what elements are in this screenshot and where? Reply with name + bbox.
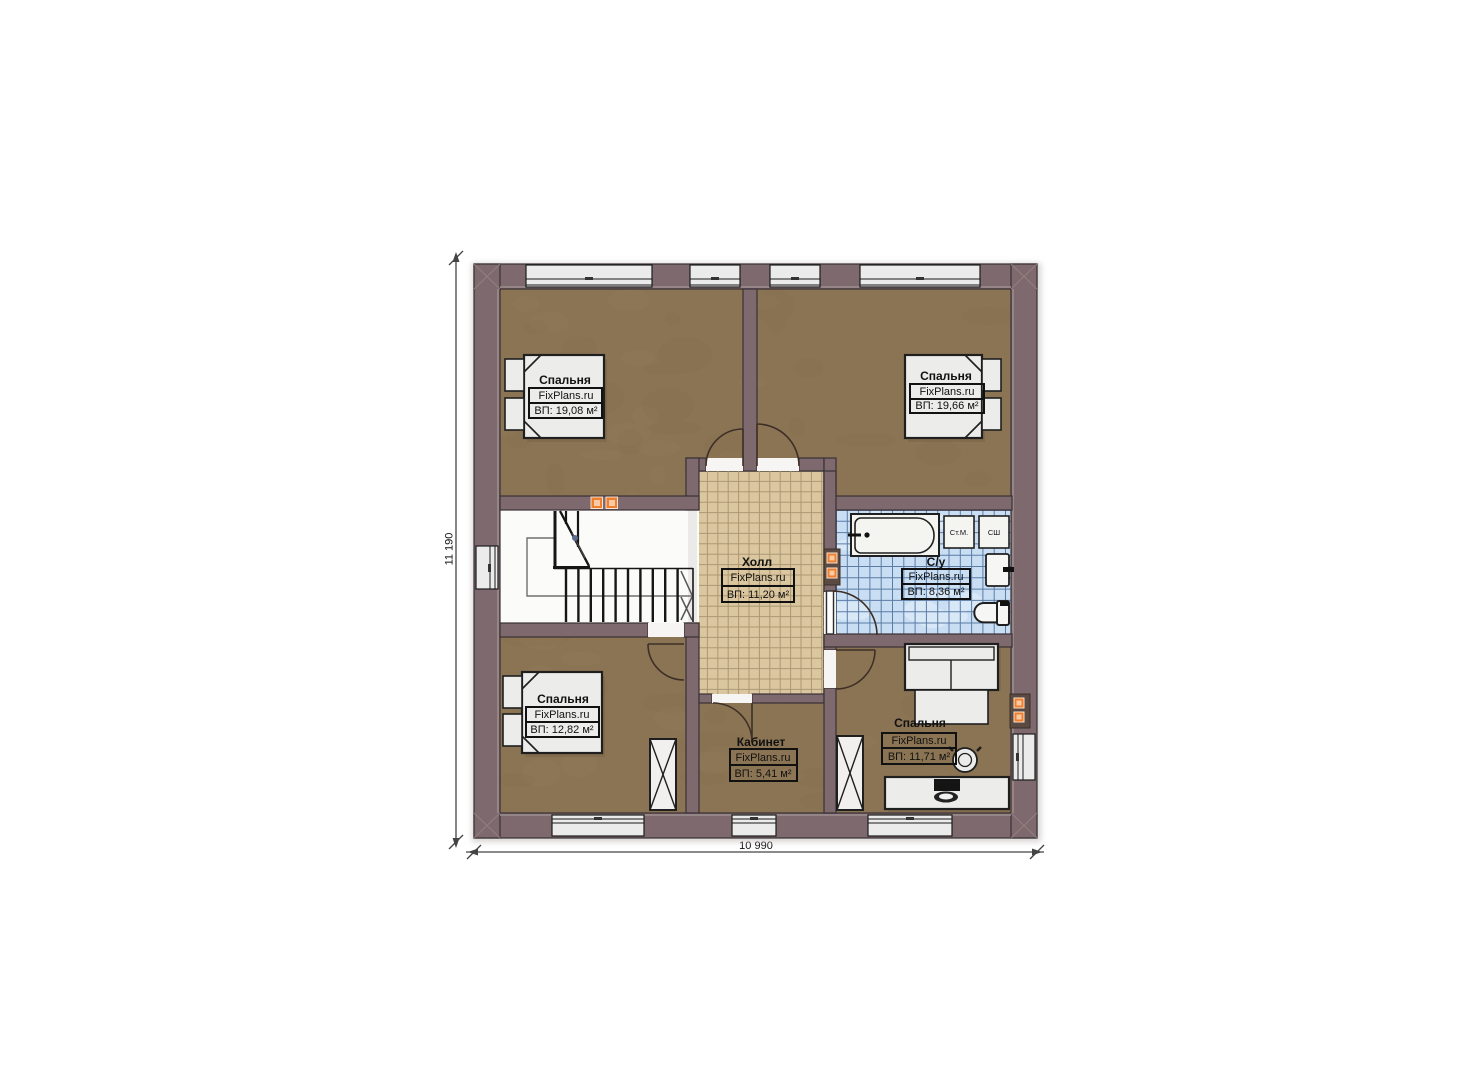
svg-text:Холл: Холл xyxy=(742,555,772,569)
svg-text:FixPlans.ru: FixPlans.ru xyxy=(919,386,974,398)
svg-text:FixPlans.ru: FixPlans.ru xyxy=(735,752,790,764)
svg-text:ВП: 5,41 м²: ВП: 5,41 м² xyxy=(734,768,791,780)
svg-text:ВП: 19,08 м²: ВП: 19,08 м² xyxy=(534,405,598,417)
svg-text:ВП: 19,66 м²: ВП: 19,66 м² xyxy=(915,400,979,412)
svg-text:FixPlans.ru: FixPlans.ru xyxy=(891,735,946,747)
svg-text:С/у: С/у xyxy=(927,555,946,569)
svg-text:Ст.М.: Ст.М. xyxy=(950,528,968,537)
svg-text:ВП: 11,71 м²: ВП: 11,71 м² xyxy=(888,751,951,763)
svg-text:FixPlans.ru: FixPlans.ru xyxy=(908,571,963,583)
svg-text:ВП: 8,36 м²: ВП: 8,36 м² xyxy=(907,586,964,598)
svg-text:11 190: 11 190 xyxy=(444,533,456,566)
svg-text:Спальня: Спальня xyxy=(539,373,591,387)
svg-text:Спальня: Спальня xyxy=(894,716,946,730)
svg-text:ВП: 12,82 м²: ВП: 12,82 м² xyxy=(530,724,594,736)
svg-text:FixPlans.ru: FixPlans.ru xyxy=(538,390,593,402)
svg-text:СШ: СШ xyxy=(988,528,1000,537)
svg-text:ВП: 11,20 м²: ВП: 11,20 м² xyxy=(727,589,790,601)
svg-text:FixPlans.ru: FixPlans.ru xyxy=(534,709,589,721)
svg-text:Кабинет: Кабинет xyxy=(737,735,786,749)
svg-text:Спальня: Спальня xyxy=(537,692,589,706)
svg-text:FixPlans.ru: FixPlans.ru xyxy=(730,572,785,584)
svg-text:Спальня: Спальня xyxy=(920,369,972,383)
